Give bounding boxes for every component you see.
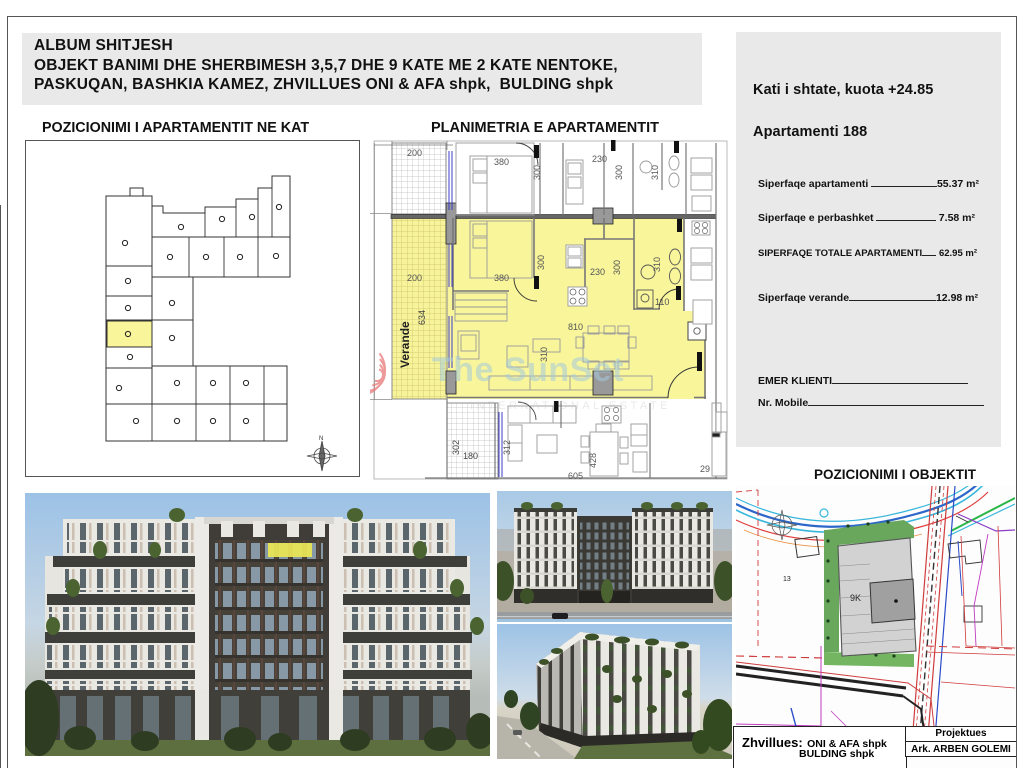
svg-text:29: 29 — [700, 464, 710, 474]
svg-text:605: 605 — [568, 471, 583, 481]
svg-text:300: 300 — [614, 165, 624, 180]
svg-text:9K: 9K — [850, 593, 861, 603]
svg-text:380: 380 — [494, 273, 509, 283]
svg-text:810: 810 — [568, 322, 583, 332]
svg-text:The SunSet: The SunSet — [432, 351, 624, 389]
svg-text:Verande: Verande — [398, 321, 412, 368]
svg-text:310: 310 — [650, 165, 660, 180]
svg-text:200: 200 — [407, 148, 422, 158]
svg-text:INTERNATIONAL ESTATE: INTERNATIONAL ESTATE — [470, 400, 671, 412]
svg-text:380: 380 — [494, 157, 509, 167]
svg-text:230: 230 — [592, 154, 607, 164]
svg-text:300: 300 — [612, 260, 622, 275]
svg-text:13: 13 — [783, 576, 791, 583]
svg-text:230: 230 — [590, 267, 605, 277]
svg-text:300: 300 — [536, 255, 546, 270]
svg-text:300: 300 — [532, 165, 542, 180]
svg-text:312: 312 — [502, 440, 512, 455]
svg-text:200: 200 — [407, 273, 422, 283]
svg-text:310: 310 — [652, 257, 662, 272]
svg-text:302: 302 — [451, 440, 461, 455]
svg-text:428: 428 — [588, 453, 598, 468]
svg-text:634: 634 — [417, 310, 427, 325]
svg-text:180: 180 — [463, 451, 478, 461]
svg-text:N: N — [319, 436, 323, 442]
